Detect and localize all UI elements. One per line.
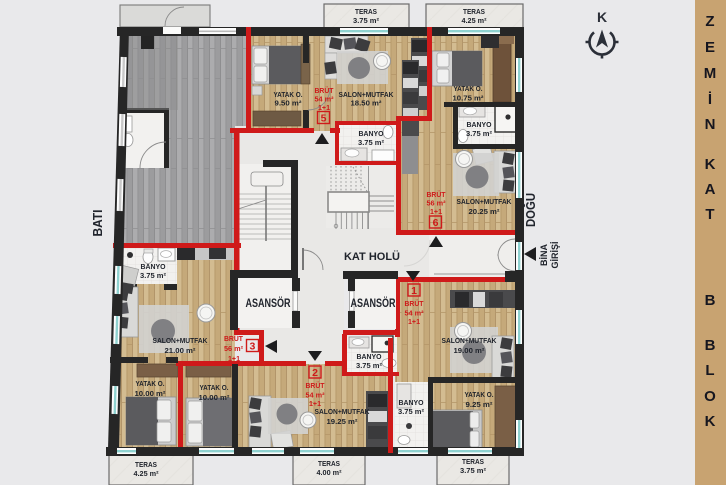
svg-text:B: B <box>705 337 716 354</box>
svg-text:2: 2 <box>312 367 318 379</box>
svg-text:3.75 m²: 3.75 m² <box>460 468 487 475</box>
svg-text:20.25 m²: 20.25 m² <box>469 209 501 216</box>
svg-text:19.00 m²: 19.00 m² <box>454 348 486 355</box>
svg-text:YATAK O.: YATAK O. <box>200 383 229 392</box>
svg-text:TERAS: TERAS <box>135 460 157 469</box>
svg-text:B: B <box>705 292 716 309</box>
svg-text:DOĞU: DOĞU <box>523 193 538 227</box>
svg-text:BANYO: BANYO <box>357 352 382 361</box>
svg-text:BANYO: BANYO <box>359 129 384 138</box>
svg-text:YATAK O.: YATAK O. <box>274 90 303 99</box>
svg-text:ASANSÖR: ASANSÖR <box>351 295 396 310</box>
svg-text:3: 3 <box>250 341 256 353</box>
svg-text:54 m²: 54 m² <box>405 309 424 318</box>
svg-text:ASANSÖR: ASANSÖR <box>246 295 291 310</box>
svg-text:SALON+MUTFAK: SALON+MUTFAK <box>339 90 395 99</box>
svg-text:3.75 m²: 3.75 m² <box>140 273 167 280</box>
svg-text:SALON+MUTFAK: SALON+MUTFAK <box>442 336 498 345</box>
svg-text:6: 6 <box>433 217 439 229</box>
svg-text:TERAS: TERAS <box>355 7 377 16</box>
svg-text:4.00 m²: 4.00 m² <box>317 470 343 477</box>
svg-text:BANYO: BANYO <box>141 262 166 271</box>
svg-text:3.75 m²: 3.75 m² <box>358 140 385 147</box>
svg-text:YATAK O.: YATAK O. <box>454 84 483 93</box>
svg-text:BRÜT: BRÜT <box>306 381 325 390</box>
svg-text:BANYO: BANYO <box>467 120 492 129</box>
svg-text:54 m²: 54 m² <box>315 95 334 104</box>
svg-text:SALON+MUTFAK: SALON+MUTFAK <box>315 407 371 416</box>
svg-text:10.00 m²: 10.00 m² <box>199 395 231 402</box>
svg-text:1+1: 1+1 <box>228 356 240 363</box>
svg-text:BRÜT: BRÜT <box>224 334 243 343</box>
svg-text:3.75 m²: 3.75 m² <box>398 409 425 416</box>
svg-text:K: K <box>705 156 716 173</box>
svg-text:K: K <box>597 9 607 25</box>
svg-text:İ: İ <box>708 91 712 108</box>
svg-text:TERAS: TERAS <box>462 457 484 466</box>
svg-text:1: 1 <box>411 285 417 297</box>
svg-text:3.75 m²: 3.75 m² <box>466 131 493 138</box>
svg-text:TERAS: TERAS <box>318 459 340 468</box>
svg-text:18.50 m²: 18.50 m² <box>351 101 383 108</box>
svg-text:3.75 m²: 3.75 m² <box>353 18 380 25</box>
svg-text:GİRİŞİ: GİRİŞİ <box>550 241 560 268</box>
svg-text:19.25 m²: 19.25 m² <box>327 419 359 426</box>
svg-text:BRÜT: BRÜT <box>405 299 424 308</box>
svg-text:YATAK O.: YATAK O. <box>136 379 165 388</box>
svg-text:BANYO: BANYO <box>399 398 424 407</box>
svg-text:O: O <box>704 388 716 405</box>
svg-text:1+1: 1+1 <box>408 319 420 326</box>
svg-text:3.75 m²: 3.75 m² <box>356 363 383 370</box>
svg-text:1+1: 1+1 <box>430 209 442 216</box>
svg-text:SALON+MUTFAK: SALON+MUTFAK <box>153 336 209 345</box>
svg-text:54 m²: 54 m² <box>306 391 325 400</box>
svg-text:N: N <box>705 116 716 133</box>
svg-text:L: L <box>705 362 714 379</box>
svg-text:21.00 m²: 21.00 m² <box>165 348 197 355</box>
svg-text:K: K <box>705 413 716 430</box>
svg-text:56 m²: 56 m² <box>427 199 446 208</box>
svg-text:T: T <box>705 206 714 223</box>
svg-text:4.25 m²: 4.25 m² <box>134 471 160 478</box>
svg-text:9.25 m²: 9.25 m² <box>466 402 494 409</box>
svg-text:YATAK O.: YATAK O. <box>465 390 494 399</box>
svg-text:9.50 m²: 9.50 m² <box>275 101 303 108</box>
svg-text:56 m²: 56 m² <box>224 344 243 353</box>
svg-text:BİNA: BİNA <box>539 244 549 266</box>
svg-text:M: M <box>704 65 717 82</box>
svg-text:5: 5 <box>321 113 327 125</box>
svg-text:A: A <box>705 181 716 198</box>
svg-text:BATI: BATI <box>91 210 105 237</box>
svg-text:4.25 m²: 4.25 m² <box>462 18 488 25</box>
svg-text:10.75 m²: 10.75 m² <box>453 96 485 103</box>
svg-text:TERAS: TERAS <box>463 7 485 16</box>
svg-text:10.00 m²: 10.00 m² <box>135 391 167 398</box>
svg-text:Z: Z <box>705 13 714 30</box>
svg-text:SALON+MUTFAK: SALON+MUTFAK <box>457 197 513 206</box>
svg-text:E: E <box>705 39 715 56</box>
svg-text:KAT HOLÜ: KAT HOLÜ <box>344 250 400 263</box>
